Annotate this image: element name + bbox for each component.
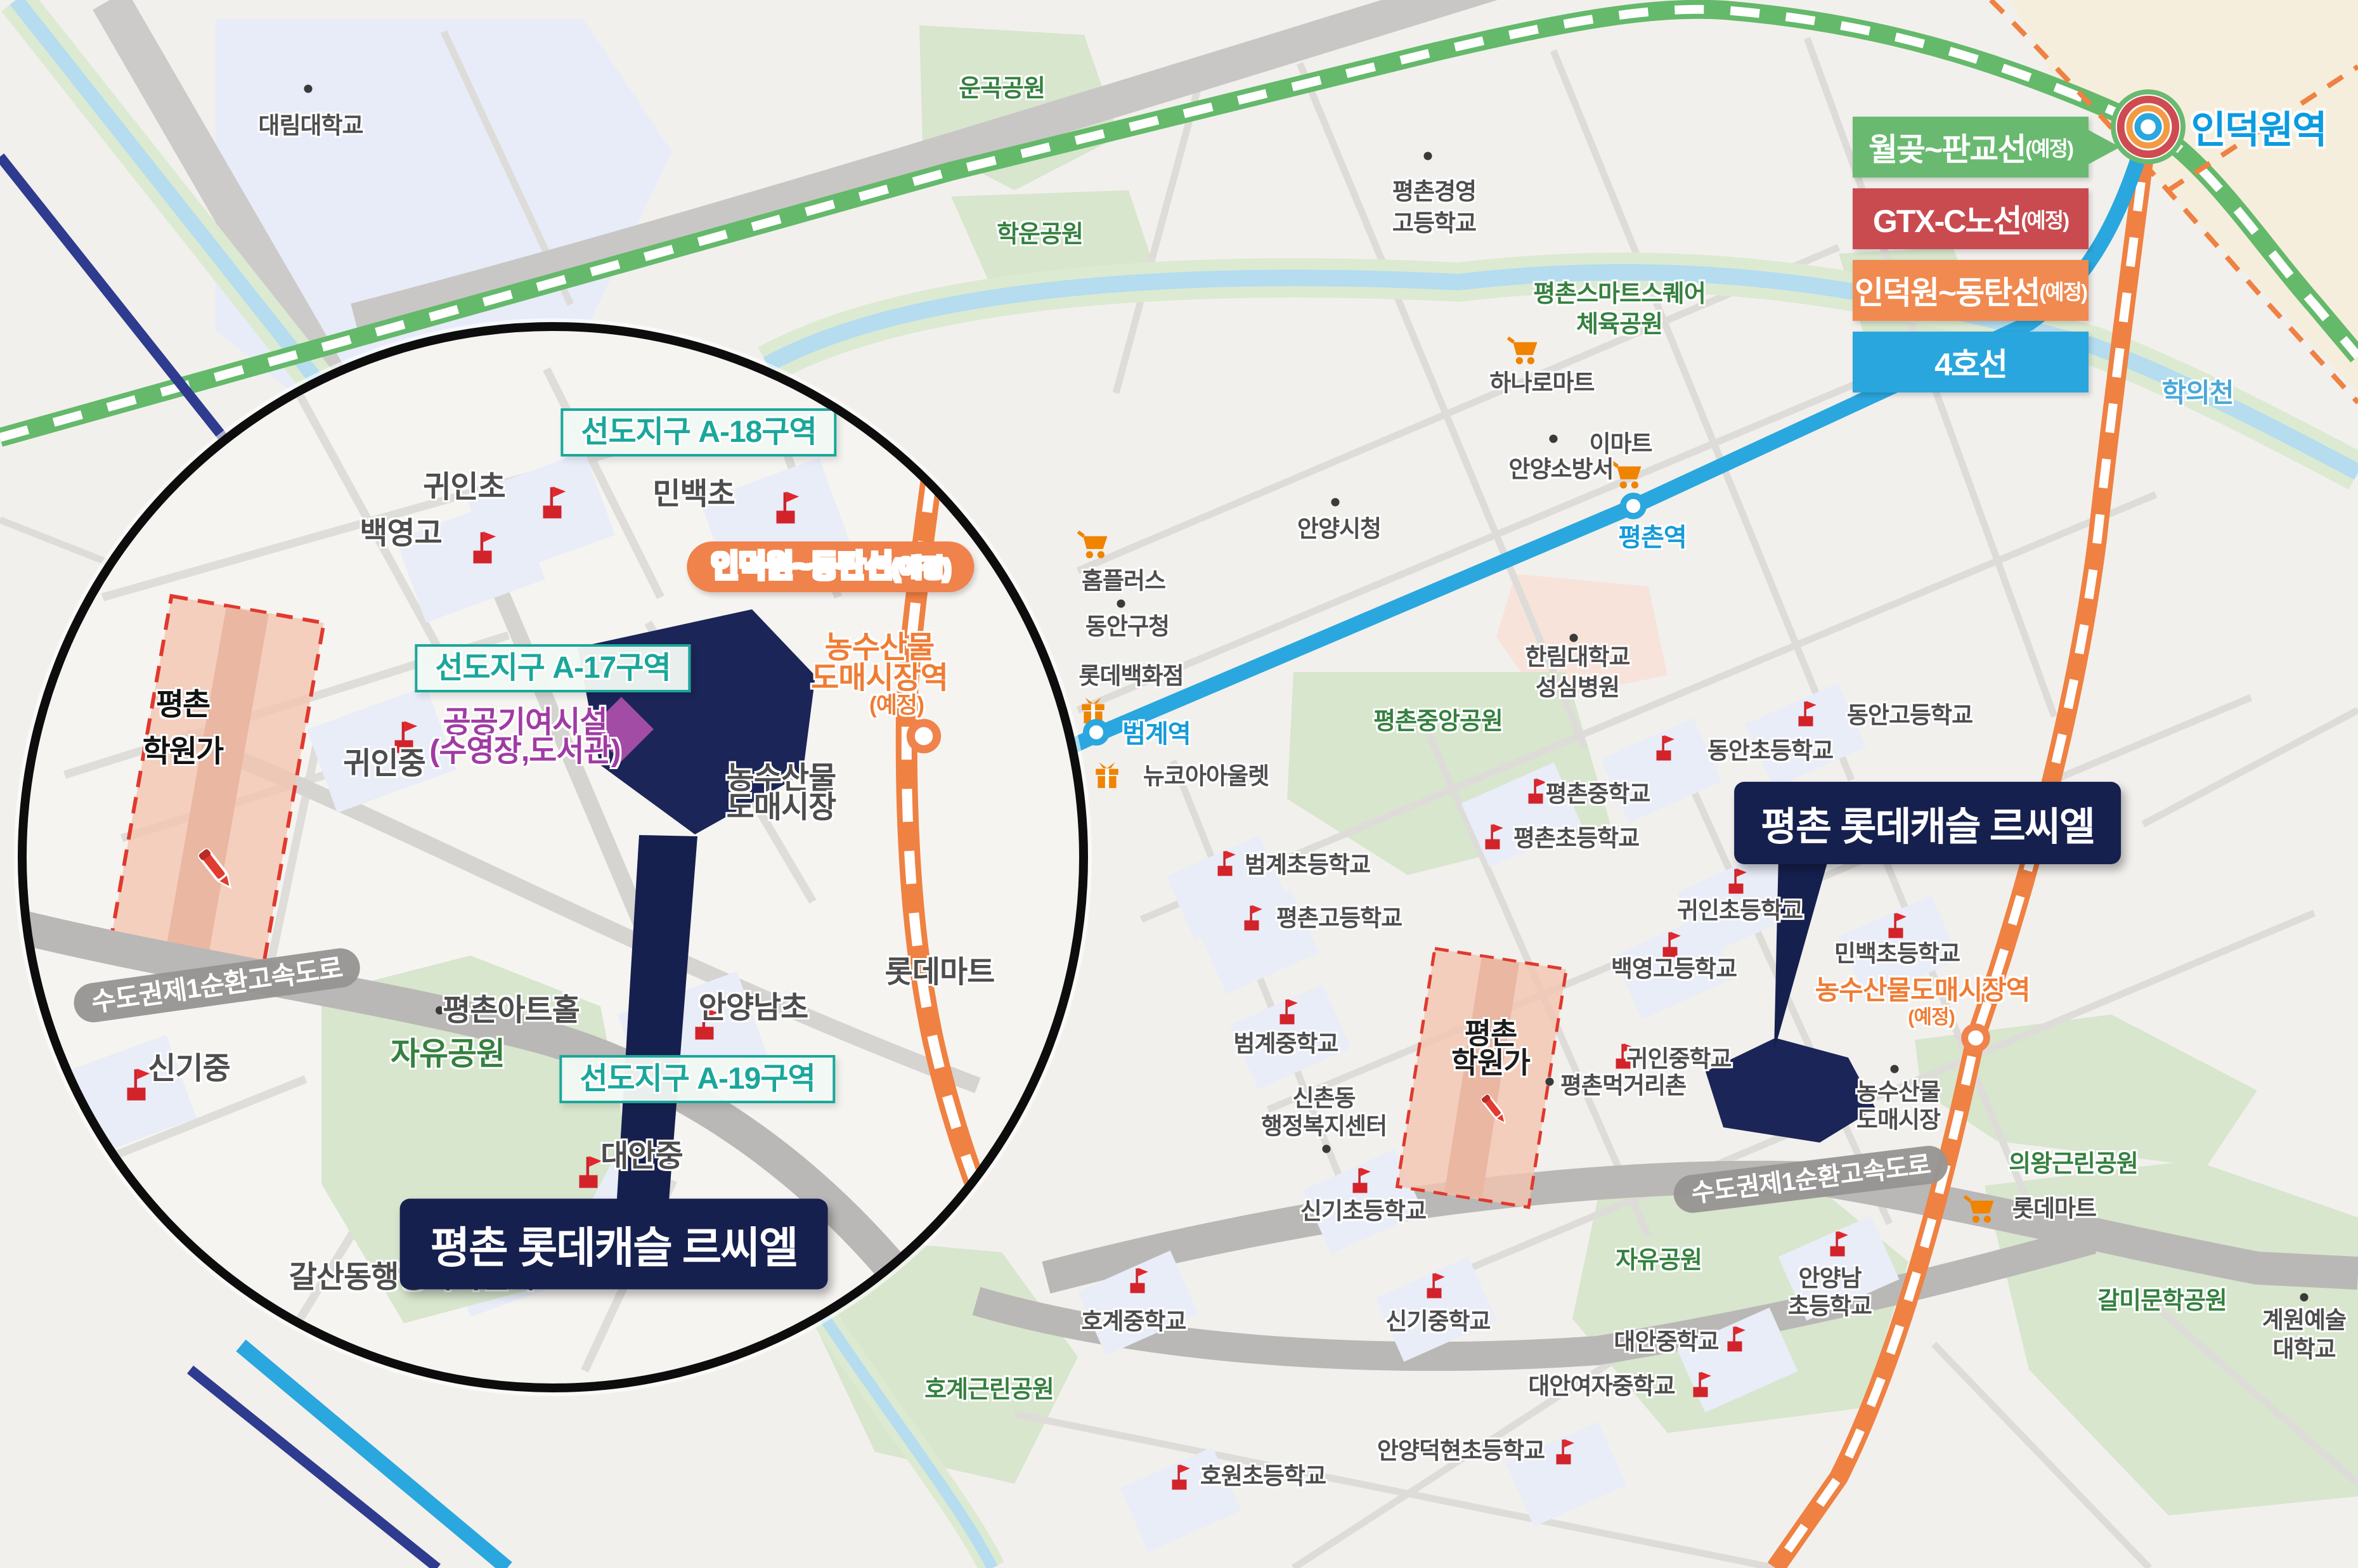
school-flag-icon [1649, 734, 1678, 763]
site-callout-inset: 평촌 롯데캐슬 르씨엘 [400, 1199, 828, 1290]
hakwonga-zone [110, 596, 324, 973]
map-label: 범계초등학교 [1245, 853, 1370, 877]
map-label: 도매시장역 [811, 663, 948, 694]
map-label: 평촌고등학교 [1276, 907, 1402, 930]
map-label: 한림대학교 [1525, 645, 1629, 669]
map-label: (예정) [869, 694, 924, 716]
school-flag-icon [1210, 849, 1240, 878]
map-label: 대학교 [2272, 1338, 2335, 1361]
map-label: 대안중 [600, 1141, 682, 1172]
map-label: 평촌아트홀 [443, 995, 580, 1026]
map-label: 초등학교 [1788, 1295, 1872, 1318]
place-dot-icon [1890, 1065, 1900, 1074]
map-label: 평촌중학교 [1545, 782, 1650, 806]
map-label: 체육공원 [1576, 313, 1662, 337]
school-flag-icon [1881, 911, 1910, 940]
school-flag-icon [1345, 1166, 1375, 1195]
map-label: 동안고등학교 [1847, 704, 1973, 727]
school-flag-icon [1420, 1271, 1449, 1300]
blue-station-icon [1081, 717, 1111, 748]
map-canvas: 대림대학교운곡공원학운공원평촌경영고등학교평촌스마트스퀘어체육공원하나로마트안양… [0, 0, 2358, 1568]
school-flag-icon [1686, 1370, 1715, 1399]
map-label: 평촌먹거리촌 [1560, 1074, 1686, 1098]
map-label: 신기중 [148, 1054, 230, 1084]
map-label: 대안중학교 [1614, 1330, 1718, 1354]
inset-magnifier-circle: 선도지구 A-18구역귀인초민백초백영고인덕원~동탄선(예정)선도지구 A-17… [18, 322, 1088, 1392]
place-dot-icon [1331, 498, 1340, 507]
map-label: 호원초등학교 [1200, 1465, 1326, 1488]
pyeongchon-station-label: 평촌역 [1618, 525, 1686, 550]
map-label: 민백초 [652, 479, 734, 510]
district-a18-label: 선도지구 A-18구역 [560, 408, 836, 457]
interchange-station-icon [2111, 89, 2186, 164]
lotte-mart-label: 롯데마트 [885, 957, 995, 988]
school-flag-icon [1655, 930, 1685, 959]
place-dot-icon [1322, 1144, 1331, 1154]
map-label: 동안구청 [1085, 615, 1169, 638]
hanaro-mart-label: 하나로마트 [1489, 372, 1594, 395]
wholesale-market-station-label: 농수산물도매시장역 [1815, 977, 2030, 1004]
map-label: 성심병원 [1536, 676, 1619, 699]
site-callout-main: 평촌 롯데캐슬 르씨엘 [1734, 782, 2121, 864]
school-flag-icon [1791, 699, 1820, 729]
map-label: (수영장,도서관) [429, 736, 620, 767]
map-label: 평촌초등학교 [1513, 827, 1639, 850]
hakwonga-label: 평촌 [1465, 1019, 1517, 1048]
indeogwon-dongtan-line [907, 356, 1057, 1368]
map-label: 범계중학교 [1233, 1032, 1338, 1056]
map-label: 롯데백화점 [1079, 664, 1183, 688]
map-label: 평촌스마트스퀘어 [1533, 282, 1706, 306]
legend-row: GTX-C노선(예정) [1853, 188, 2089, 249]
shopping-cart-icon [1610, 457, 1644, 491]
map-label: 호계중학교 [1081, 1310, 1186, 1333]
map-label: 안양소방서 [1508, 458, 1613, 481]
hakun-park-label: 학운공원 [997, 223, 1083, 247]
map-label: 농수산물 [825, 633, 935, 663]
legend-rows: 월곶~판교선(예정)GTX-C노선(예정)인덕원~동탄선(예정)4호선 [1853, 117, 2089, 392]
indeogwon-station-label: 인덕원역 [2191, 100, 2326, 155]
blue-station-icon [1618, 491, 1649, 521]
pencil-icon [1476, 1091, 1513, 1128]
map-label: 안양남초 [699, 993, 808, 1023]
map-label: 평촌경영 [1392, 180, 1476, 204]
place-dot-icon [1117, 599, 1126, 609]
beomgye-station-label: 범계역 [1122, 722, 1190, 747]
map-label: 농수산물 [1856, 1080, 1940, 1104]
shopping-cart-icon [1962, 1191, 1997, 1226]
map-label: 도매시장 [1856, 1108, 1940, 1132]
ungok-park-label: 운곡공원 [959, 77, 1045, 101]
school-flag-icon [1823, 1229, 1852, 1259]
school-flag-icon [1720, 1325, 1749, 1354]
map-label: 평촌중앙공원 [1373, 709, 1503, 734]
shopping-cart-icon [1076, 527, 1110, 561]
map-label: 신기중학교 [1385, 1310, 1490, 1333]
school-flag-icon [1123, 1266, 1152, 1295]
homeplus-label: 홈플러스 [1082, 569, 1165, 593]
emart-label: 이마트 [1589, 432, 1652, 456]
place-dot-icon [304, 84, 313, 94]
place-dot-icon [1569, 633, 1579, 643]
map-label: 뉴코아아울렛 [1143, 765, 1269, 788]
legend-row: 월곶~판교선(예정) [1853, 117, 2089, 178]
gift-outlet-icon [1091, 759, 1123, 791]
map-label: 농수산물 [727, 763, 836, 794]
public-facility-label: 공공기여시설 [443, 708, 607, 738]
legend-pointer [2087, 129, 2120, 165]
map-label: 자유공원 [1616, 1248, 1702, 1273]
school-flag-icon [1237, 904, 1266, 933]
map-label: 안양덕현초등학교 [1377, 1439, 1545, 1463]
map-label: 계원예술 [2262, 1309, 2346, 1332]
school-flag-icon [1549, 1437, 1578, 1467]
orange-station-icon [1959, 1021, 1992, 1054]
hakuicheon-stream-label: 학의천 [2162, 380, 2234, 406]
map-label: 신촌동 [1292, 1087, 1355, 1110]
map-label: 도매시장 [727, 793, 836, 823]
map-label: 민백초등학교 [1834, 942, 1960, 966]
map-label: 안양남 [1798, 1267, 1861, 1290]
legend-row: 4호선 [1853, 332, 2089, 392]
school-flag-icon [1478, 822, 1507, 852]
map-label: 신기초등학교 [1300, 1200, 1426, 1223]
place-dot-icon [1423, 152, 1433, 161]
map-label: 자유공원 [391, 1038, 505, 1070]
shopping-cart-icon [1506, 333, 1540, 367]
map-label: 귀인초 [423, 472, 505, 503]
map-label: 고등학교 [1392, 212, 1476, 235]
district-a17-label: 선도지구 A-17구역 [415, 644, 690, 692]
place-dot-icon [1549, 434, 1558, 444]
school-flag-icon [1165, 1463, 1194, 1492]
indeogwon-dongtan-line-label: 인덕원~동탄선(예정) [687, 541, 974, 592]
map-label: 동안초등학교 [1707, 739, 1833, 763]
place-dot-icon [1545, 1077, 1555, 1087]
map-label: 의왕근린공원 [2009, 1152, 2138, 1176]
school-flag-icon [1721, 867, 1751, 896]
legend-row: 인덕원~동탄선(예정) [1853, 260, 2089, 321]
map-label: 대안여자중학교 [1528, 1375, 1675, 1398]
map-label: 행정복지센터 [1261, 1115, 1387, 1138]
map-label: 갈미문학공원 [2097, 1289, 2227, 1313]
lotte-mart-label: 롯데마트 [2012, 1197, 2096, 1221]
daelim-univ-label: 대림대학교 [258, 114, 363, 138]
map-label: 귀인중 [343, 749, 425, 779]
map-label: 안양시청 [1297, 517, 1381, 541]
hakwonga-label: 학원가 [1451, 1048, 1530, 1077]
hakwonga-label: 학원가 [143, 737, 223, 767]
map-label: 백영고 [360, 519, 441, 549]
map-label: 귀인중학교 [1626, 1047, 1731, 1071]
legend: 월곶~판교선(예정)GTX-C노선(예정)인덕원~동탄선(예정)4호선 [1853, 117, 2089, 403]
school-flag-icon [1273, 997, 1302, 1027]
district-a19-label: 선도지구 A-19구역 [559, 1055, 835, 1103]
map-label: 귀인초등학교 [1677, 899, 1803, 923]
place-dot-icon [2300, 1293, 2309, 1302]
map-label: 백영고등학교 [1611, 957, 1737, 981]
hakwonga-label: 평촌 [156, 690, 209, 720]
map-label: (예정) [1908, 1008, 1955, 1027]
